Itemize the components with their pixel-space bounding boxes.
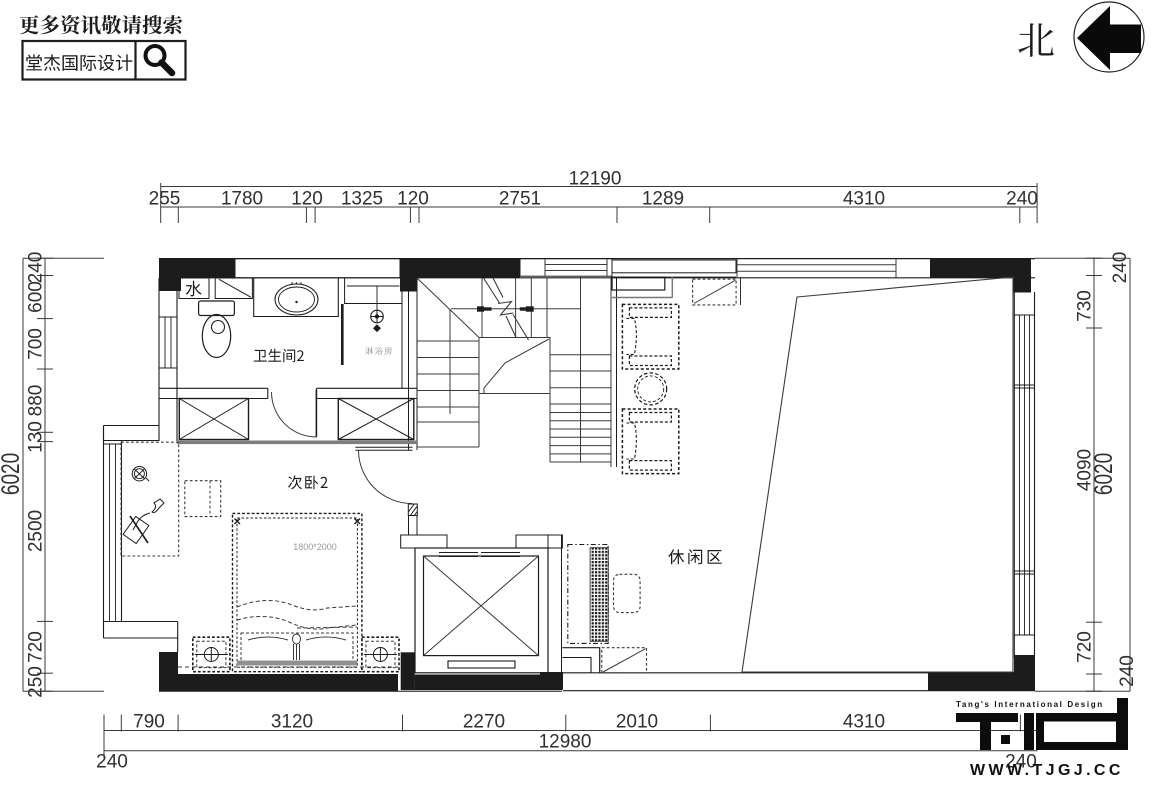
svg-text:6020: 6020 (1089, 453, 1117, 495)
svg-text:1780: 1780 (221, 189, 263, 210)
svg-text:4310: 4310 (843, 189, 885, 210)
svg-text:240: 240 (96, 752, 128, 773)
svg-text:600: 600 (26, 281, 47, 313)
svg-text:720: 720 (1075, 631, 1096, 663)
svg-text:720: 720 (26, 631, 47, 663)
svg-text:1325: 1325 (341, 189, 383, 210)
svg-text:240: 240 (1117, 655, 1138, 687)
svg-text:250: 250 (26, 666, 47, 698)
svg-text:1800*2000: 1800*2000 (293, 542, 337, 552)
svg-text:1289: 1289 (642, 189, 684, 210)
svg-text:130: 130 (26, 421, 47, 453)
svg-text:255: 255 (149, 189, 181, 210)
svg-text:4310: 4310 (843, 712, 885, 733)
svg-text:12190: 12190 (569, 169, 622, 190)
svg-text:120: 120 (397, 189, 429, 210)
svg-text:2500: 2500 (26, 510, 47, 552)
svg-text:6020: 6020 (0, 453, 25, 495)
svg-text:2010: 2010 (616, 712, 658, 733)
svg-text:2751: 2751 (499, 189, 541, 210)
svg-text:700: 700 (26, 328, 47, 360)
svg-text:2270: 2270 (463, 712, 505, 733)
svg-text:880: 880 (26, 385, 47, 417)
svg-text:120: 120 (291, 189, 323, 210)
svg-text:Tang's International Design: Tang's International Design (956, 700, 1104, 709)
svg-text:3120: 3120 (271, 712, 313, 733)
svg-text:240: 240 (26, 252, 47, 284)
svg-text:790: 790 (133, 712, 165, 733)
svg-text:WWW.TJGJ.CC: WWW.TJGJ.CC (970, 762, 1124, 779)
svg-text:12980: 12980 (539, 732, 592, 753)
svg-text:730: 730 (1075, 290, 1096, 322)
svg-text:240: 240 (1110, 252, 1131, 284)
svg-text:240: 240 (1006, 189, 1038, 210)
